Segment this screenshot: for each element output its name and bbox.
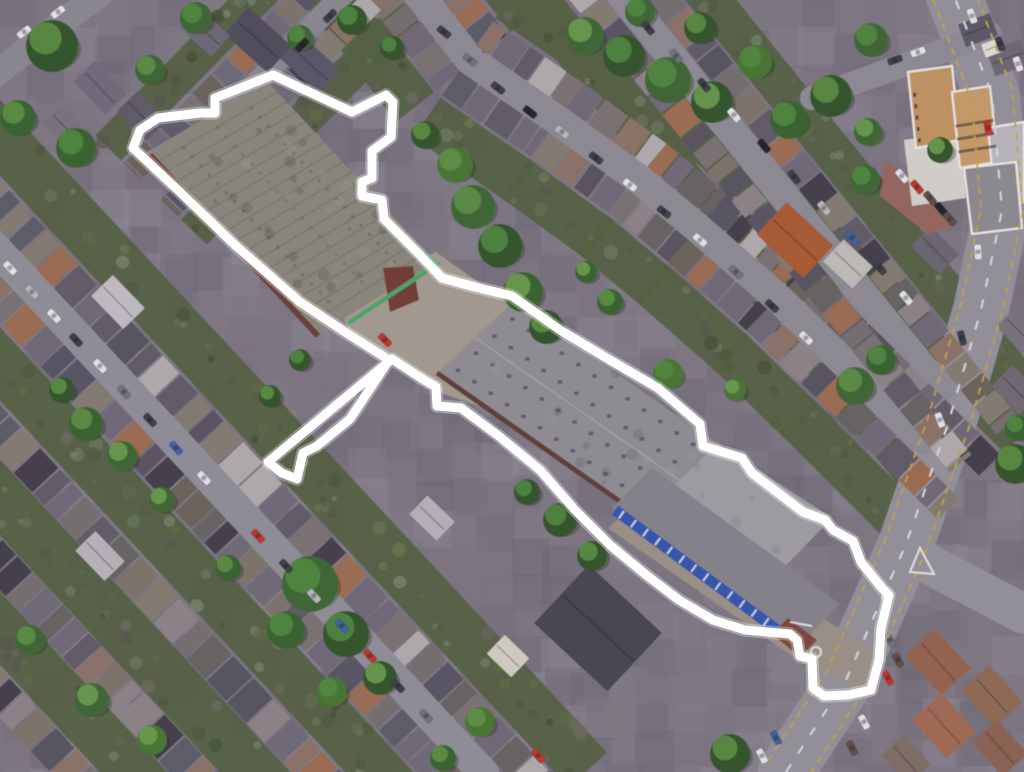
aerial-3d-view[interactable] bbox=[0, 0, 1024, 772]
aerial-photo-canvas bbox=[0, 0, 1024, 772]
